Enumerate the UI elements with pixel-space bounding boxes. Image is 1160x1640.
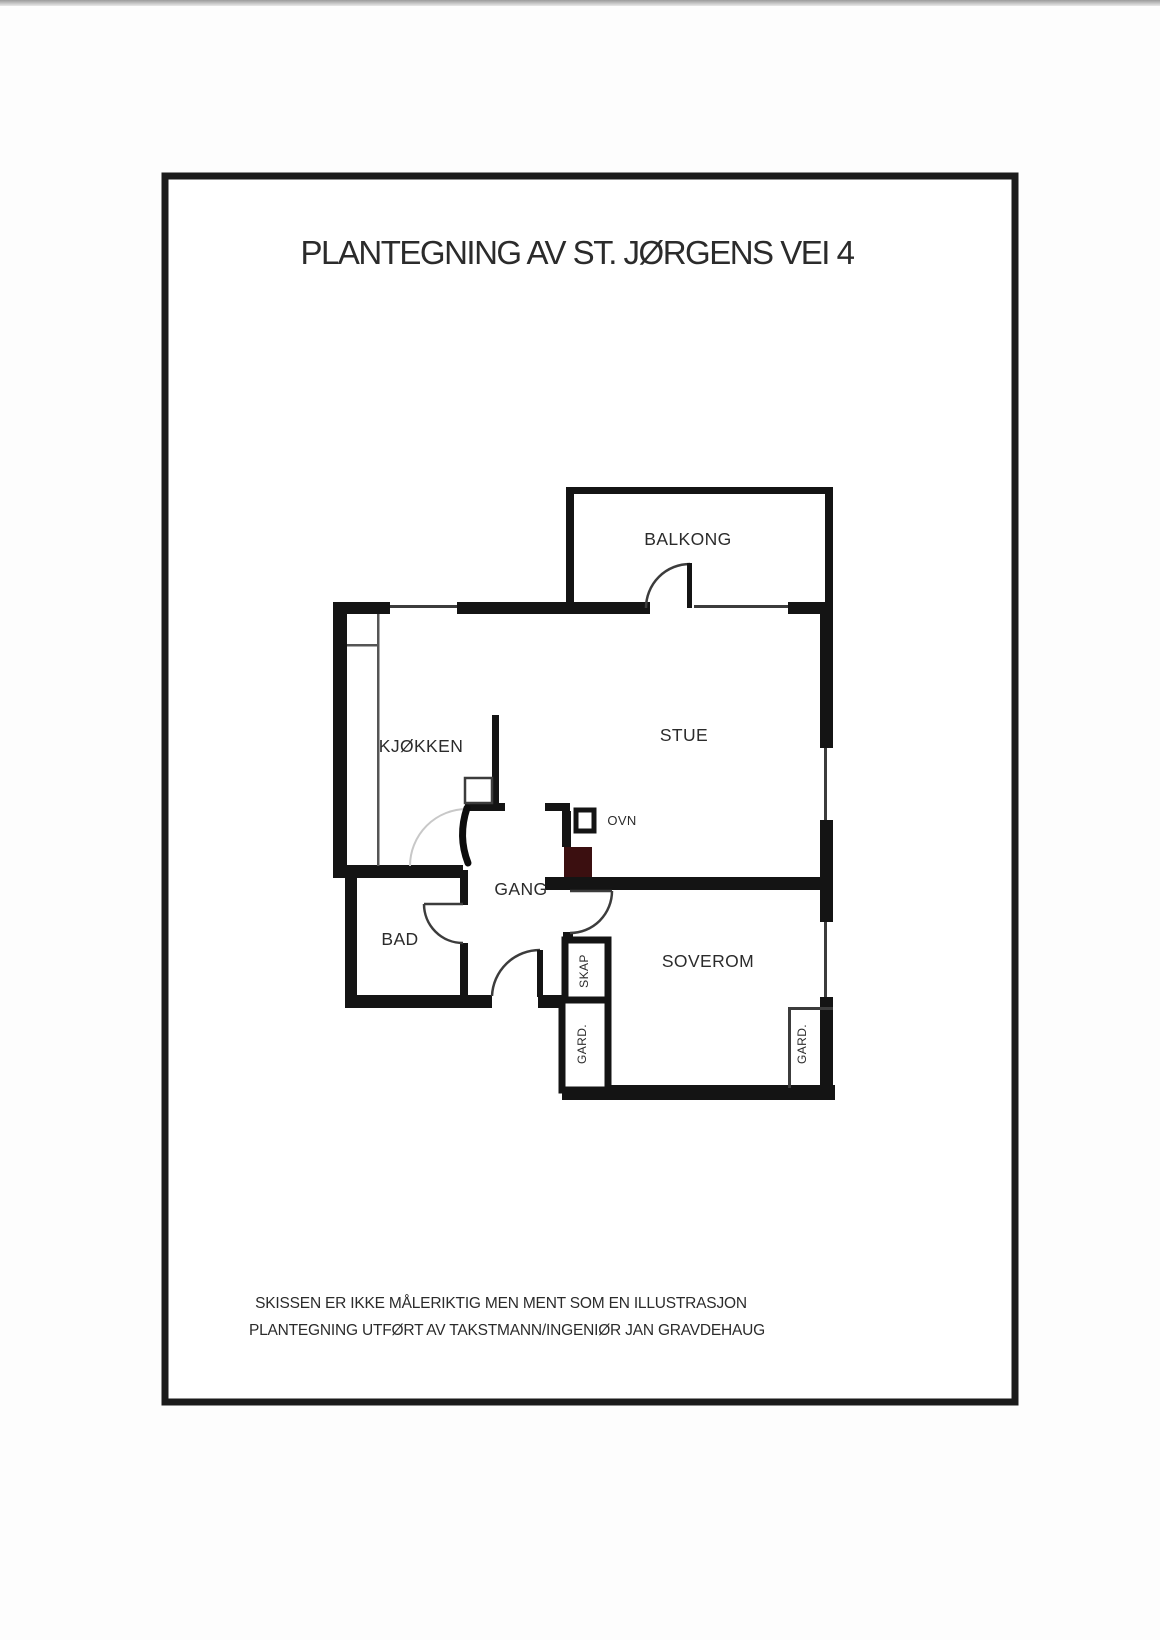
page-title: PLANTEGNING AV ST. JØRGENS VEI 4	[301, 234, 855, 271]
wall-top-mid	[457, 602, 650, 614]
kitchen-counter-divider	[347, 644, 379, 647]
balcony-wall-right	[825, 487, 833, 602]
window-stue-right	[824, 748, 827, 820]
window-stue-top	[694, 605, 788, 608]
kitchen-sink-unit	[465, 778, 492, 803]
balcony-wall-top	[566, 487, 833, 494]
wall-kitchen-bottom	[333, 865, 463, 878]
chimney-block	[564, 847, 592, 877]
wall-ovn-nook-side	[562, 811, 571, 847]
label-gard-right: GARD.	[795, 1024, 809, 1064]
label-soverom: SOVEROM	[662, 951, 754, 971]
label-gang: GANG	[494, 879, 547, 899]
wall-bath-hall-upper	[460, 870, 468, 905]
label-bad: BAD	[381, 929, 418, 949]
footer-line2: PLANTEGNING UTFØRT AV TAKSTMANN/INGENIØR…	[249, 1322, 765, 1339]
wall-bath-hall-lower	[460, 943, 468, 995]
wall-stue-soverom	[545, 877, 833, 890]
wall-left-outer	[333, 602, 347, 878]
wall-bath-bottom	[345, 995, 492, 1008]
window-soverom	[824, 922, 827, 997]
entry-door-leaf	[537, 950, 543, 997]
scan-edge-artifact	[0, 0, 1160, 6]
balcony-wall-left	[566, 487, 574, 602]
label-gard-left: GARD.	[575, 1024, 589, 1064]
floorplan-canvas: PLANTEGNING AV ST. JØRGENS VEI 4	[0, 0, 1160, 1640]
wall-right-upper	[820, 610, 833, 748]
balcony-door-leaf	[687, 563, 692, 608]
label-skap: SKAP	[577, 954, 591, 988]
document-frame	[165, 176, 1015, 1402]
scanned-floorplan-page: PLANTEGNING AV ST. JØRGENS VEI 4	[0, 0, 1160, 1640]
footer-line1: SKISSEN ER IKKE MÅLERIKTIG MEN MENT SOM …	[255, 1295, 747, 1312]
wall-bath-left	[345, 865, 357, 1008]
label-balkong: BALKONG	[644, 529, 731, 549]
label-stue: STUE	[660, 725, 708, 745]
wall-right-lower	[820, 997, 833, 1100]
label-kjokken: KJØKKEN	[379, 736, 464, 756]
label-ovn: OVN	[607, 813, 636, 828]
wardrobe-right-side-line	[788, 1007, 791, 1088]
wardrobe-right-top-line	[788, 1007, 833, 1010]
wall-ovn-nook-top	[545, 803, 570, 811]
wall-right-mid	[820, 820, 833, 922]
oven-marker	[576, 810, 594, 831]
window-kitchen	[390, 605, 457, 608]
